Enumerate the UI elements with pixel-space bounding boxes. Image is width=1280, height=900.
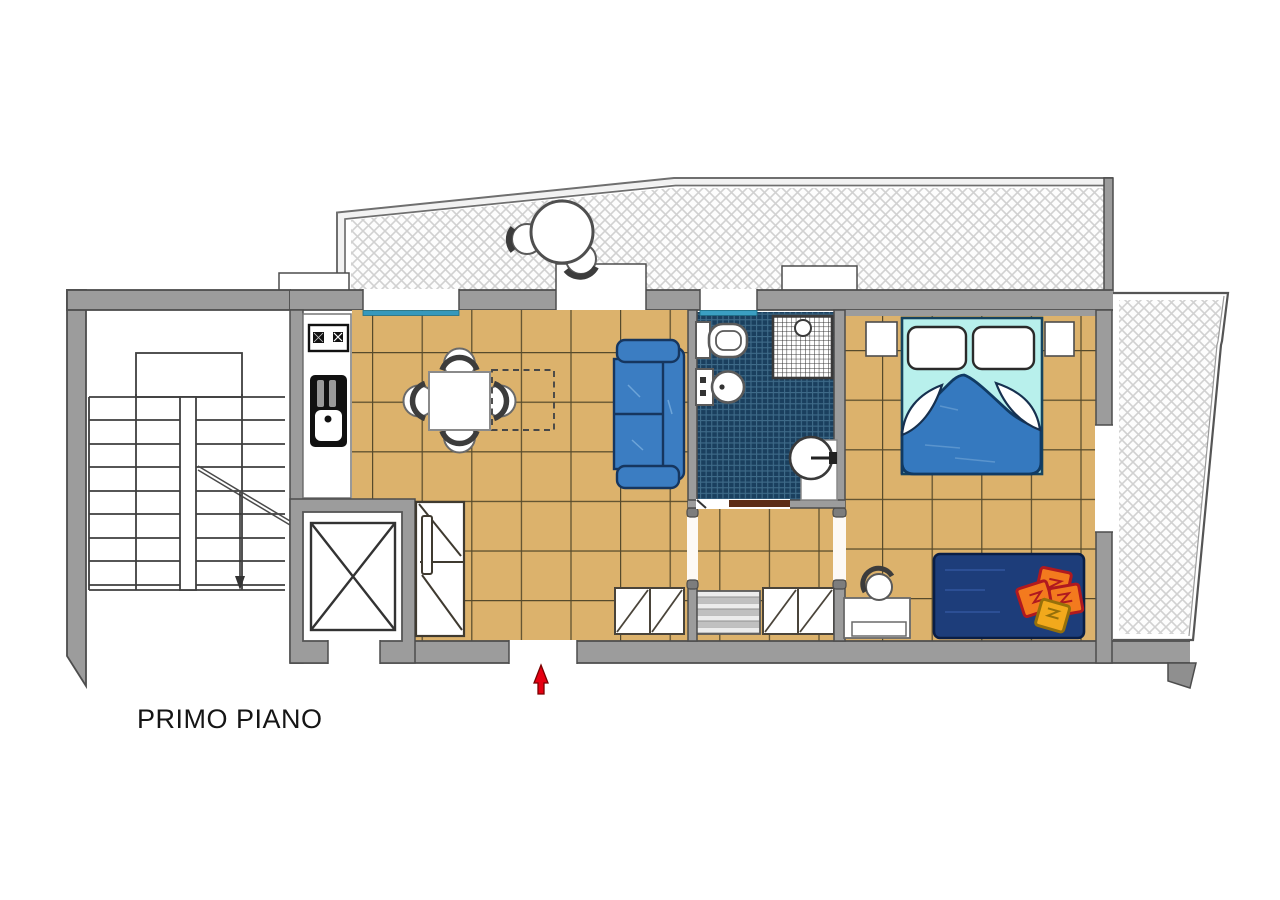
svg-text:PRIMO PIANO: PRIMO PIANO xyxy=(137,704,323,734)
